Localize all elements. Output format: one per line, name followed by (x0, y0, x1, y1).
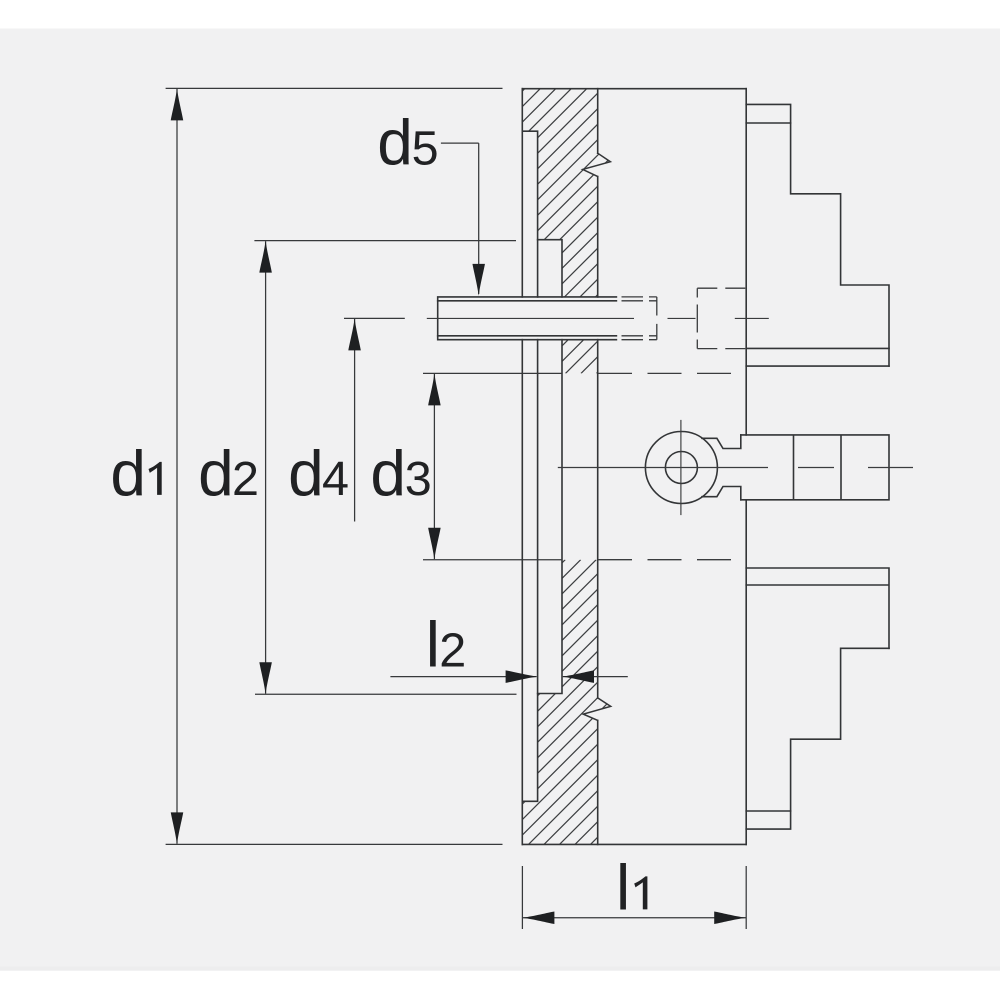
svg-text:4: 4 (322, 452, 349, 506)
svg-text:2: 2 (439, 624, 466, 678)
svg-text:l: l (616, 851, 630, 923)
svg-text:l: l (426, 609, 440, 681)
svg-text:5: 5 (412, 122, 439, 176)
svg-text:2: 2 (232, 452, 259, 506)
svg-text:d: d (377, 107, 413, 179)
svg-text:d: d (370, 438, 406, 510)
svg-text:d: d (198, 438, 234, 510)
svg-text:d: d (110, 438, 146, 510)
svg-text:3: 3 (405, 452, 432, 506)
svg-text:d: d (288, 438, 324, 510)
